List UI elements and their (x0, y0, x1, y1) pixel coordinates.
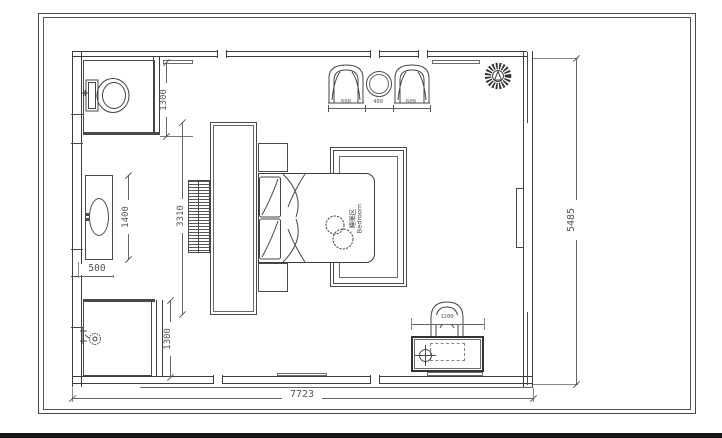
sill-top-right (432, 60, 480, 64)
dim-height-ext-top (533, 58, 578, 59)
wc-glass-partition (83, 132, 160, 135)
mirror-lamp-cross-v (425, 345, 426, 366)
wall-bottom (72, 376, 533, 384)
tv-unit-center-line (198, 180, 199, 253)
dim-dresser-line (411, 324, 484, 325)
dim-width-ext-left (72, 388, 73, 402)
dim-chairs-tick-4 (430, 105, 431, 112)
dim-side-table: 400 (366, 100, 390, 107)
dressing-table-stool-seat (430, 343, 465, 361)
vanity-faucet-2 (86, 218, 89, 221)
wall-bottom-outer-line (140, 387, 533, 388)
bed-room-label: 睡眠区 Bedroom (350, 196, 367, 242)
wardrobe-cabinet-inner (213, 125, 254, 312)
wall-right-pilaster (516, 188, 524, 248)
dim-vanity-depth-ext1 (78, 262, 79, 278)
shower-glass-partition (83, 299, 155, 302)
toilet-icon (82, 74, 134, 118)
dim-overall-height: 5485 (567, 200, 579, 240)
dim-overall-width: 7723 (282, 390, 322, 402)
bottom-wall-jamb-1 (213, 375, 223, 384)
dim-height-ext-bottom (533, 384, 578, 385)
top-wall-jamb-3 (418, 50, 428, 58)
armchair-left-icon (327, 62, 365, 104)
sill-bottom-center (277, 373, 327, 376)
side-table-inner (369, 74, 389, 94)
plant-icon (483, 61, 513, 91)
shower-partition-wall (156, 300, 163, 376)
dim-width-ext-right (533, 388, 534, 402)
vanity-basin (89, 198, 109, 236)
dim-wc-depth: 1300 (160, 83, 170, 117)
left-wall-joint-3 (71, 249, 83, 250)
window-right-bottom-mullion (527, 312, 528, 385)
dim-chairs-tick-3 (393, 105, 394, 112)
dim-armchair-right: 600 (399, 100, 423, 107)
dim-tvwall-length: 3310 (177, 199, 187, 233)
dim-shower-depth: 1300 (164, 322, 174, 356)
nightstand-top (258, 143, 288, 172)
wall-top (72, 51, 527, 57)
top-wall-jamb-1 (217, 50, 227, 58)
left-wall-joint-2 (71, 143, 83, 144)
screenshot-bottom-bar (0, 433, 722, 438)
sill-bottom-right (427, 372, 483, 376)
dim-dresser-ext1 (411, 318, 412, 330)
top-wall-jamb-2 (370, 50, 380, 58)
tv-unit (188, 180, 210, 253)
vanity-faucet (86, 213, 89, 216)
floor-plan: 1300 1400 500 1300 3310 (0, 0, 722, 438)
dim-dresser-width: 1200 (433, 315, 461, 324)
wall-right (523, 51, 533, 387)
nightstand-bottom (258, 263, 288, 292)
dim-vanity-length: 1400 (122, 200, 132, 234)
shower-head-icon (80, 326, 106, 350)
dim-dresser-ext2 (484, 318, 485, 330)
dim-chairs-tick-1 (328, 105, 329, 112)
armchair-right-icon (393, 62, 431, 104)
dim-vanity-depth: 500 (80, 264, 114, 275)
bottom-wall-jamb-2 (370, 375, 380, 384)
dim-vanity-depth-line (78, 276, 113, 277)
dim-chairs-line (328, 108, 430, 109)
dim-armchair-left: 600 (334, 100, 358, 107)
window-right-top-mullion (527, 52, 528, 123)
room-label-en: Bedroom (356, 196, 363, 242)
